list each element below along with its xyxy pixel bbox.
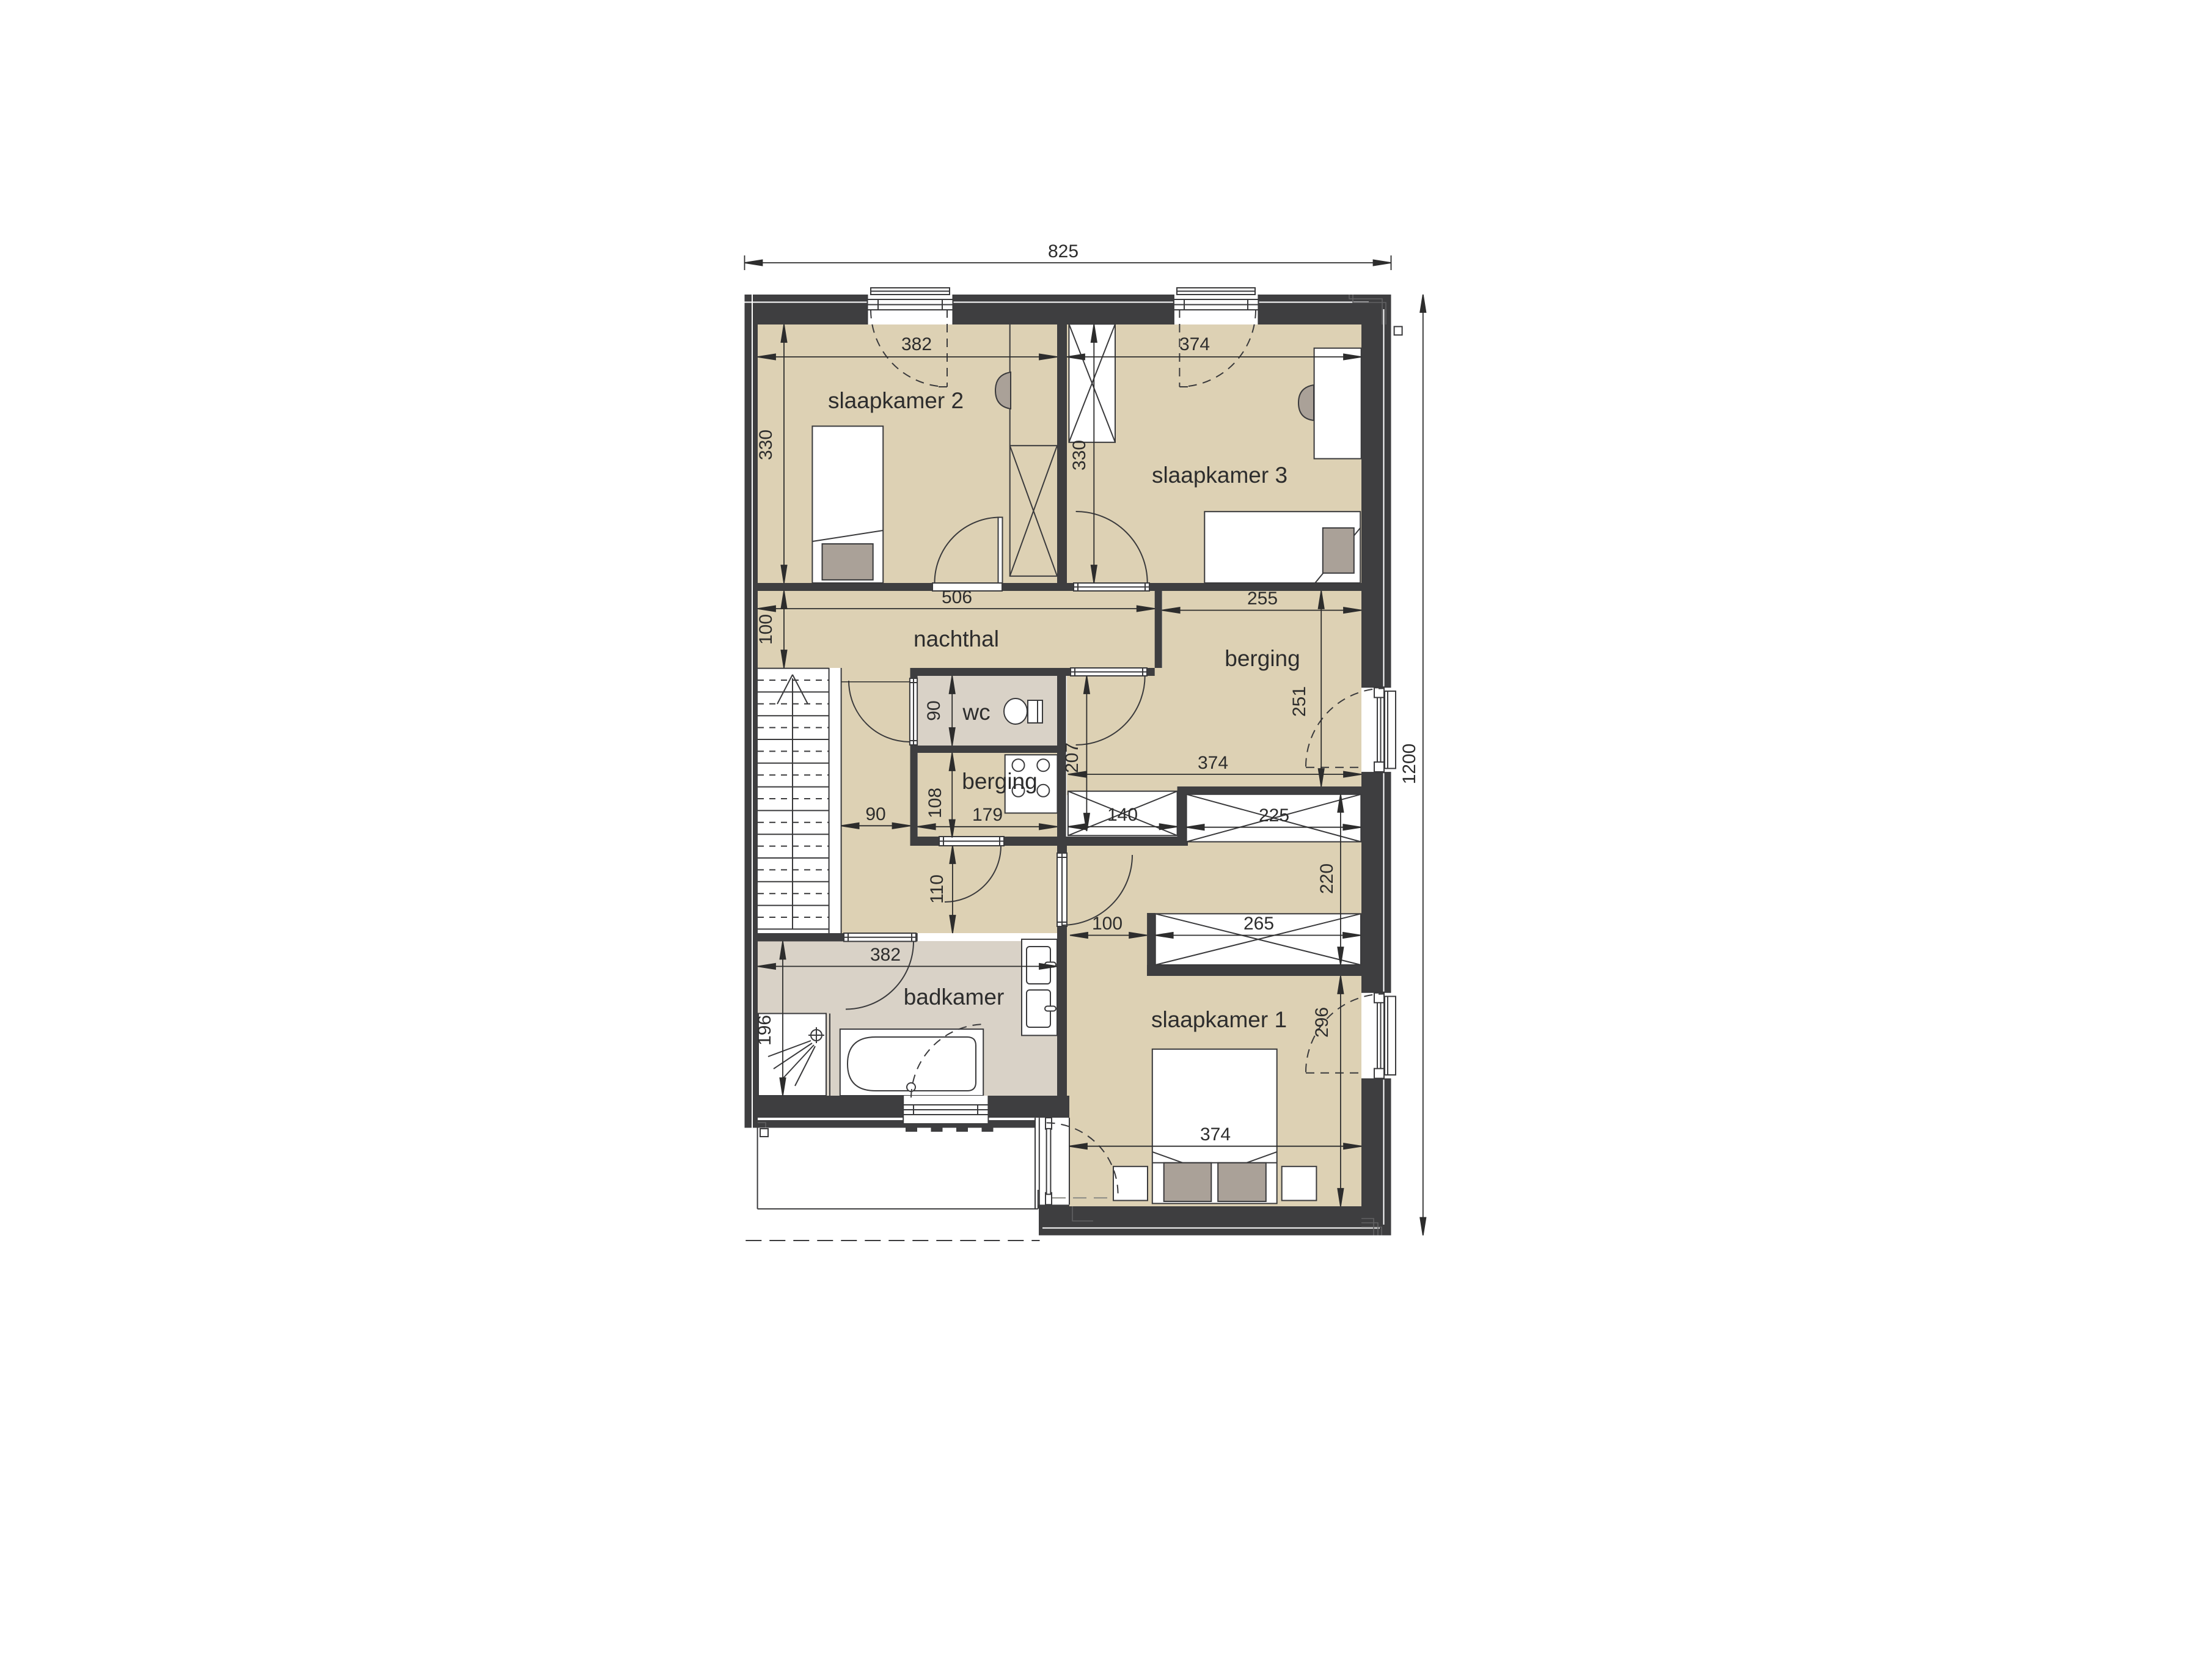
svg-text:330: 330	[756, 430, 776, 460]
svg-text:374: 374	[1200, 1124, 1231, 1145]
svg-text:140: 140	[1107, 805, 1138, 825]
svg-text:374: 374	[1198, 753, 1228, 773]
svg-text:1200: 1200	[1399, 744, 1419, 785]
svg-text:220: 220	[1317, 863, 1337, 894]
svg-text:179: 179	[972, 805, 1003, 825]
svg-text:265: 265	[1243, 914, 1274, 934]
svg-text:badkamer: badkamer	[904, 984, 1005, 1010]
svg-text:100: 100	[1092, 914, 1122, 934]
svg-text:382: 382	[901, 334, 932, 354]
svg-text:wc: wc	[962, 700, 990, 725]
svg-text:108: 108	[925, 788, 945, 818]
svg-text:506: 506	[942, 587, 972, 607]
svg-text:berging: berging	[1225, 646, 1300, 671]
svg-text:90: 90	[924, 700, 944, 720]
svg-text:nachthal: nachthal	[914, 626, 999, 651]
svg-text:90: 90	[865, 804, 885, 824]
svg-text:251: 251	[1289, 686, 1309, 717]
svg-text:207: 207	[1062, 742, 1082, 773]
svg-text:100: 100	[756, 614, 776, 645]
svg-text:825: 825	[1048, 241, 1079, 262]
svg-text:330: 330	[1069, 440, 1090, 471]
svg-text:slaapkamer 1: slaapkamer 1	[1151, 1007, 1287, 1032]
svg-text:296: 296	[1312, 1007, 1332, 1038]
svg-text:196: 196	[755, 1015, 775, 1046]
svg-text:382: 382	[870, 945, 901, 965]
svg-text:374: 374	[1179, 334, 1210, 354]
svg-text:slaapkamer 2: slaapkamer 2	[828, 388, 964, 413]
svg-text:255: 255	[1247, 588, 1278, 609]
svg-text:225: 225	[1259, 805, 1289, 826]
svg-text:110: 110	[927, 874, 947, 904]
svg-text:slaapkamer 3: slaapkamer 3	[1152, 463, 1287, 488]
svg-text:berging: berging	[962, 769, 1037, 794]
